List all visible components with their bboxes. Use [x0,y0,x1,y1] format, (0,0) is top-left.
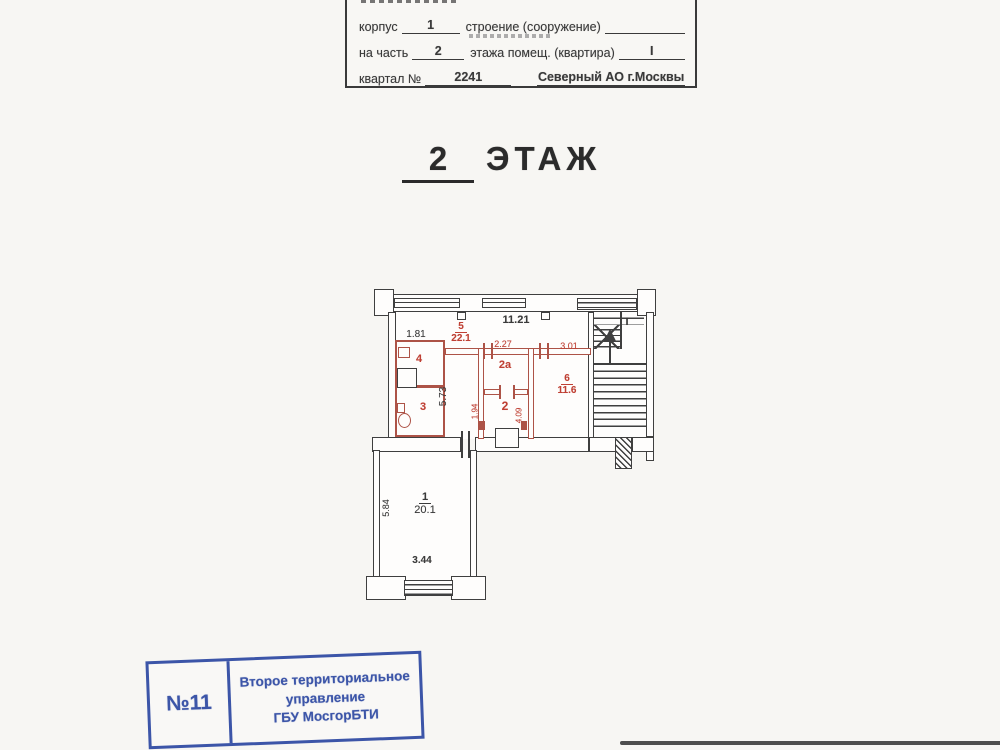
door-notch [495,428,519,448]
door-jamb-tick-2 [468,431,470,458]
room1-bottom-wall-right [451,576,486,600]
upper-bottom-wall-right [475,437,589,452]
floor-number: 2 [402,140,474,183]
form-label-na-chast: на часть [359,46,408,60]
stair-number: I [618,316,636,328]
duct-shaft [397,368,417,388]
red-fixture-1 [479,421,485,430]
dim-3-44: 3.44 [402,555,442,566]
red-door-tick-5 [499,385,501,399]
scanned-document-page: корпус 1 строение (сооружение) на часть … [0,0,1000,750]
form-row-kvartal: квартал № 2241 Северный АО г.Москвы [359,66,685,86]
stair-direction-arrow-icon [604,329,616,341]
dim-1-81: 1.81 [394,329,438,340]
cutoff-text-fragment [361,0,457,3]
form-value-na-chast: 2 [412,44,464,60]
caption-smudge [469,34,553,38]
vent-shaft-1 [457,312,466,320]
form-row-korpus: корпус 1 строение (сооружение) [359,14,685,34]
room1-right-wall [470,450,477,580]
form-label-korpus: корпус [359,20,398,34]
room-5-area: 22.1 [451,333,470,344]
room-1-label: 1 20.1 [408,491,442,516]
red-door-tick-3 [539,343,541,359]
sink-icon [398,347,410,358]
room1-bottom-wall-left [366,576,406,600]
red-door-tick-1 [483,343,485,359]
red-door-tick-6 [513,385,515,399]
room1-left-wall [373,450,380,580]
room-5-number: 5 [455,321,467,333]
toilet-tank-icon [397,403,405,413]
partition-2a-2-left [484,389,500,395]
dim-4-09: 4.09 [515,408,524,424]
red-door-tick-4 [547,343,549,359]
room-4-number: 4 [410,353,428,365]
understair-hatch-block [615,437,632,469]
form-label-etazha: этажа помещ. (квартира) [470,46,614,60]
upper-bottom-wall-left [372,437,461,452]
room-2-number: 2 [494,400,516,413]
room-1-area: 20.1 [414,504,435,516]
room-6-number: 6 [561,373,573,385]
room-3-number: 3 [414,401,432,413]
right-exterior-wall [646,312,654,437]
stamp-organization: Второе территориальное управление ГБУ Мо… [229,654,421,743]
room-2a-number: 2а [492,359,518,371]
room-5-label: 5 22.1 [446,321,476,344]
room-6-label: 6 11.6 [550,373,584,396]
vent-shaft-2 [541,312,550,320]
form-label-stroenie: строение (сооружение) [466,20,601,34]
room-1-number: 1 [419,491,431,504]
stamp-number: №11 [149,661,233,746]
understair-wall [589,437,617,452]
window-top-3 [577,298,637,310]
form-value-kvartal: 2241 [425,70,511,86]
understair-wall-right [632,437,654,452]
cutoff-bottom-rule [620,741,1000,745]
floor-word: ЭТАЖ [486,140,601,177]
door-jamb-tick-1 [461,431,463,458]
dim-5-84: 5.84 [382,499,392,517]
room1-window [404,580,453,596]
dim-3-01: 3.01 [552,342,586,352]
dim-1-94: 1.94 [471,404,480,420]
room2a-right-wall [528,348,534,439]
toilet-bowl-icon [398,413,411,428]
header-form: корпус 1 строение (сооружение) на часть … [345,0,697,88]
stair-arrow-stem [609,341,611,365]
floor-title: 2ЭТАЖ [402,140,632,183]
partition-2a-2-right [514,389,528,395]
form-value-korpus: 1 [402,18,460,34]
form-label-kvartal: квартал № [359,72,421,86]
bti-stamp: №11 Второе территориальное управление ГБ… [145,651,424,750]
dim-2-27: 2.27 [486,340,520,350]
dim-5-73: 5.73 [438,387,449,406]
form-value-okrug: Северный АО г.Москвы [537,70,685,86]
floor-plan: 1.81 11.21 5 22.1 2.27 3.01 2а 6 11.6 2 … [358,285,664,615]
dim-11-21: 11.21 [492,314,540,326]
stamp-org-line3: ГБУ МосгорБТИ [273,706,379,729]
window-top-1 [394,298,460,308]
window-top-2 [482,298,526,308]
form-value-kvartira: I [619,44,685,60]
room-6-area: 11.6 [558,385,577,396]
stair-steps [594,365,646,429]
form-row-etazh: на часть 2 этажа помещ. (квартира) I [359,40,685,60]
form-blank-stroenie [605,33,685,34]
